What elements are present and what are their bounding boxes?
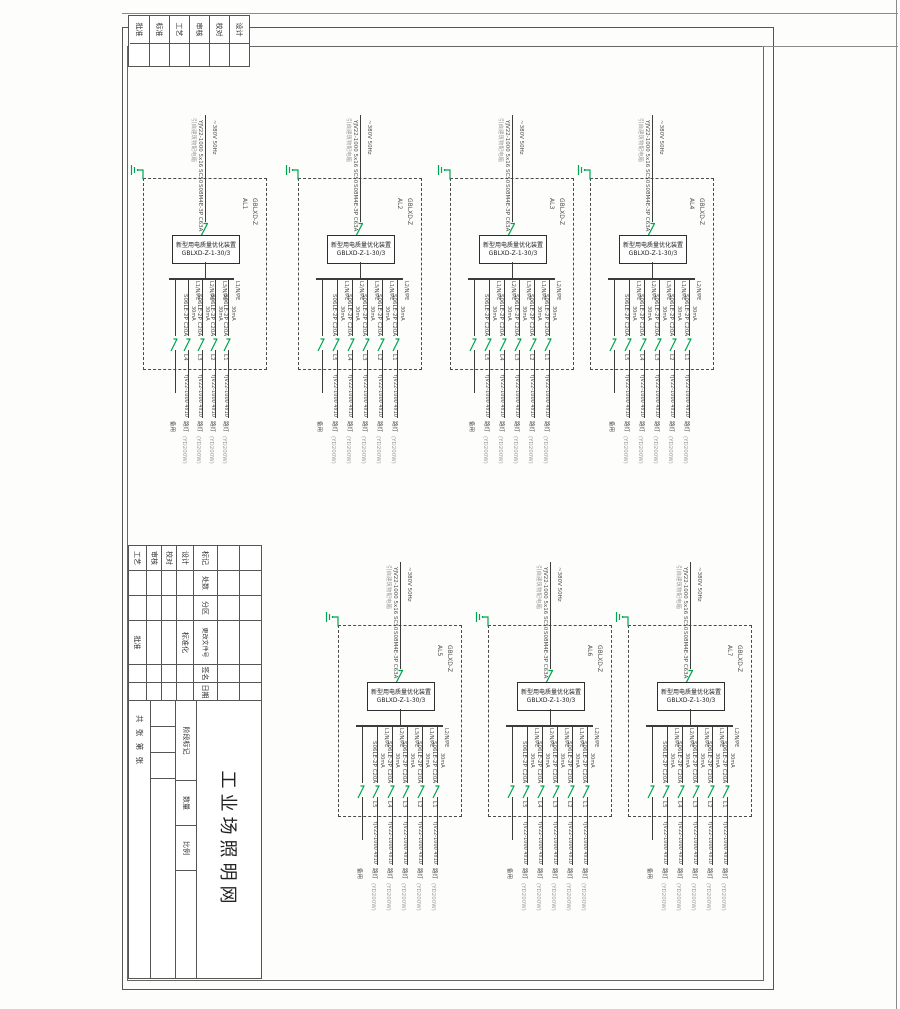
branch-wire-upper [474, 279, 475, 336]
branch-wire-upper [712, 726, 713, 783]
branch-cable-label: YJV22-1000 4x10 [392, 374, 397, 417]
branch-cable-label: YJV22-1000 4x10 [210, 374, 215, 417]
branch-rcd-label: 30mA [339, 306, 344, 321]
branch-phase-label: L2/N/PE [593, 728, 598, 747]
titleblock-cell [240, 683, 261, 700]
titleblock-cell [176, 871, 196, 978]
device-model: GBLXD-Z-1-30/3 [658, 697, 724, 705]
panel-name-label: AL6 [586, 645, 592, 656]
branch-wire-upper [527, 726, 528, 783]
branch-cable-label: YJV22-1000 4x10 [417, 821, 422, 864]
titleblock-row [239, 546, 261, 700]
branch-wire-upper [202, 279, 203, 336]
branch-rcd-label: 30mA [551, 306, 556, 321]
device-name: 新型用电质量优化装置 [620, 242, 686, 250]
load-power-label: (YD200W) [580, 883, 586, 911]
load-name-label: 路灯 [653, 421, 659, 432]
branch-breaker-label: S06LE-2P C20A [376, 294, 382, 336]
ground-icon [437, 163, 451, 184]
branch-breaker-icon [566, 783, 576, 803]
branch-wire-upper [667, 726, 668, 783]
incoming-source-label: 引自建筑物配电箱 [535, 565, 541, 609]
titleblock-cell [218, 546, 239, 571]
branch-cable-label: YJV22-1000 4x10 [624, 374, 629, 417]
load-name-label: 路灯 [371, 868, 377, 879]
qty-label: 数量 [176, 781, 196, 826]
branch-cable-label: YJV22-1000 4x10 [377, 374, 382, 417]
panel-model-label: GBLXD-Z [596, 645, 602, 672]
branch-rcd-label: 30mA [424, 753, 429, 768]
branch-cable-label: YJV22-1000 4x10 [567, 821, 572, 864]
branch-wire-lower [474, 350, 475, 393]
panel-model-label: GBLXD-Z [698, 198, 704, 225]
incoming-cable-label: YJV22-1000 5x16 SC50 [504, 120, 510, 183]
load-power-label: (YD200W) [675, 883, 681, 911]
titleblock-cell [129, 596, 146, 621]
titleblock-row [217, 546, 239, 700]
titleblock-row: 阶段标记 数量 比例 [175, 701, 196, 978]
incoming-feeder-wire [205, 115, 206, 222]
load-power-label: (YD200W) [195, 436, 201, 464]
incoming-feeder-wire [690, 562, 691, 669]
circuit-id-label: L1 [391, 354, 397, 361]
panel-model-label: GBLXD-Z [406, 198, 412, 225]
branch-breaker-label: S06LE-2P C20A [371, 741, 377, 783]
drawing-title: 工业场照明网 [196, 701, 261, 978]
load-name-label: 路灯 [581, 868, 587, 879]
load-power-label: (YD200W) [400, 883, 406, 911]
ground-icon [130, 163, 144, 184]
circuit-id-label: L1 [431, 801, 437, 808]
device-name: 新型用电质量优化装置 [518, 689, 584, 697]
load-power-label: (YD200W) [565, 883, 571, 911]
load-power-label: (YD200W) [512, 436, 518, 464]
branch-breaker-label: S06LE-2P C20A [536, 741, 542, 783]
branch-breaker-label: S06LE-2P C20A [566, 741, 572, 783]
device-outgoing-stem [205, 262, 206, 279]
strip-row: 校对 [209, 16, 229, 66]
branch-wire-upper [392, 726, 393, 783]
circuit-id-label: L1 [683, 354, 689, 361]
titleblock-cell [129, 665, 146, 683]
load-name-label: 路灯 [623, 421, 629, 432]
branch-rcd-label: 30mA [521, 306, 526, 321]
strip-label: 审核 [190, 16, 209, 44]
panel-name-label: AL2 [396, 198, 402, 209]
incoming-source-label: 引自建筑物配电箱 [385, 565, 391, 609]
circuit-id-label: L3 [513, 354, 519, 361]
load-power-label: (YD200W) [720, 883, 726, 911]
branch-phase-label: L2/N/PE [403, 281, 408, 300]
incoming-cable-label: YJV22-1000 5x16 SC50 [542, 567, 548, 630]
load-power-label: (YD200W) [375, 436, 381, 464]
branch-rcd-label: 30mA [544, 753, 549, 768]
load-power-label: (YD200W) [667, 436, 673, 464]
load-name-label: 路灯 [391, 421, 397, 432]
branch-breaker-icon [431, 783, 441, 803]
branch-rcd-label: 30mA [190, 306, 195, 321]
rev-header: 更改文件号 [194, 621, 217, 665]
circuit-id-label: L4 [498, 354, 504, 361]
branch-breaker-label: S06LE-2P C20A [431, 741, 437, 783]
circuit-id-label: L2 [706, 801, 712, 808]
incoming-source-label: 引自建筑物配电箱 [637, 118, 643, 162]
incoming-source-label: 引自建筑物配电箱 [345, 118, 351, 162]
load-power-label: (YD200W) [370, 883, 376, 911]
strip-blank-cell [150, 44, 169, 66]
load-power-label: (YD200W) [637, 436, 643, 464]
branch-cable-label: YJV22-1000 4x10 [432, 821, 437, 864]
load-name-label: 路灯 [513, 421, 519, 432]
device-outgoing-stem [690, 709, 691, 726]
device-outgoing-stem [550, 709, 551, 726]
load-power-label: (YD200W) [497, 436, 503, 464]
circuit-id-label: L1 [543, 354, 549, 361]
branch-wire-upper [644, 279, 645, 336]
load-name-label: 路灯 [209, 421, 215, 432]
branch-wire-upper [614, 279, 615, 336]
panel-name-label: AL7 [726, 645, 732, 656]
sig-label: 校对 [162, 546, 176, 571]
titleblock-cell [177, 571, 193, 596]
branch-wire-upper [422, 726, 423, 783]
circuit-id-label: L2 [376, 354, 382, 361]
branch-wire-upper [362, 726, 363, 783]
branch-breaker-label: S06LE-2P C20A [543, 294, 549, 336]
branch-breaker-icon [169, 336, 179, 356]
titleblock-row: 校对 [161, 546, 176, 700]
branch-breaker-label: S06LE-2P C20A [209, 294, 215, 336]
circuit-id-label: L3 [551, 801, 557, 808]
scan-artifact-line [762, 46, 898, 47]
load-name-label: 路灯 [668, 421, 674, 432]
strip-row: 批准 [130, 16, 149, 66]
branch-phase-label: L1/N/PE [234, 281, 239, 300]
load-power-label: (YD200W) [535, 883, 541, 911]
branch-breaker-icon [528, 336, 538, 356]
panel-model-label: GBLXD-Z [251, 198, 257, 225]
load-power-label: (YD200W) [330, 436, 336, 464]
branch-wire-upper [377, 726, 378, 783]
panel-model-label: GBLXD-Z [446, 645, 452, 672]
branch-breaker-icon [376, 336, 386, 356]
branch-breaker-icon [581, 783, 591, 803]
bus-bar [316, 278, 403, 280]
branch-wire-upper [652, 726, 653, 783]
strip-blank-cell [230, 44, 249, 66]
titleblock-cell [177, 596, 193, 621]
load-name-label: 路灯 [401, 868, 407, 879]
device-name: 新型用电质量优化装置 [173, 242, 239, 250]
load-name-label: 路灯 [528, 421, 534, 432]
branch-breaker-icon [371, 783, 381, 803]
device-outgoing-stem [400, 709, 401, 726]
branch-wire-upper [727, 726, 728, 783]
circuit-id-label: L2 [528, 354, 534, 361]
panel-name-label: AL3 [548, 198, 554, 209]
load-power-label: (YD200W) [542, 436, 548, 464]
spare-label: 备用 [506, 868, 512, 879]
branch-wire-upper [512, 726, 513, 783]
panel-name-label: AL4 [688, 198, 694, 209]
branch-breaker-label: S06LE-2P C20A [521, 741, 527, 783]
branch-rcd-label: 30mA [230, 306, 235, 321]
sheet-count: 共 张 第 张 [129, 701, 150, 978]
sig-label: 设计 [177, 546, 193, 571]
branch-rcd-label: 30mA [369, 306, 374, 321]
spare-label: 备用 [356, 868, 362, 879]
branch-phase-label: L2/N/PE [733, 728, 738, 747]
ground-icon [285, 163, 299, 184]
branch-rcd-label: 30mA [661, 306, 666, 321]
load-name-label: 路灯 [331, 421, 337, 432]
branch-wire-upper [629, 279, 630, 336]
strip-label: 批准 [130, 16, 149, 44]
device-model: GBLXD-Z-1-30/3 [328, 250, 394, 258]
branch-breaker-icon [391, 336, 401, 356]
titleblock-cell [218, 665, 239, 683]
device-model: GBLXD-Z-1-30/3 [173, 250, 239, 258]
titleblock-cell [240, 546, 261, 571]
load-name-label: 路灯 [498, 421, 504, 432]
load-power-label: (YD200W) [385, 883, 391, 911]
load-power-label: (YD200W) [345, 436, 351, 464]
panel-name-label: AL5 [436, 645, 442, 656]
device-name: 新型用电质量优化装置 [328, 242, 394, 250]
incoming-voltage-label: ~380V 50Hz [696, 567, 702, 602]
panel-model-label: GBLXD-Z [558, 198, 564, 225]
branch-breaker-label: S06LE-2P C20A [551, 741, 557, 783]
load-power-label: (YD200W) [482, 436, 488, 464]
circuit-id-label: L5 [521, 801, 527, 808]
branch-wire-upper [397, 279, 398, 336]
std-label: 标准化 [177, 621, 193, 665]
titleblock-header-row: 标记 处数 分区 更改文件号 签名 日期 [193, 546, 217, 700]
branch-wire-upper [674, 279, 675, 336]
branch-wire-upper [572, 726, 573, 783]
branch-wire-lower [362, 797, 363, 840]
load-power-label: (YD200W) [221, 436, 227, 464]
stage-box [151, 701, 175, 727]
titleblock-cell [240, 621, 261, 665]
incoming-voltage-label: ~380V 50Hz [556, 567, 562, 602]
incoming-feeder-wire [400, 562, 401, 669]
branch-breaker-icon [361, 336, 371, 356]
branch-wire-upper [689, 279, 690, 336]
branch-breaker-icon [653, 336, 663, 356]
titleblock-cell [177, 665, 193, 683]
branch-cable-label: YJV22-1000 4x10 [684, 374, 689, 417]
incoming-cable-label: YJV22-1000 5x16 SC50 [352, 120, 358, 183]
titleblock-cell [147, 683, 161, 700]
titleblock-row: 审核 [146, 546, 161, 700]
branch-rcd-label: 30mA [536, 306, 541, 321]
branch-wire-upper [322, 279, 323, 336]
circuit-id-label: L1 [222, 354, 228, 361]
rev-header: 日期 [194, 683, 217, 700]
load-name-label: 路灯 [536, 868, 542, 879]
branch-breaker-label: S06LE-2P C20A [401, 741, 407, 783]
incoming-source-label: 引自建筑物配电箱 [497, 118, 503, 162]
branch-rcd-label: 30mA [491, 306, 496, 321]
branch-breaker-icon [513, 336, 523, 356]
incoming-feeder-wire [512, 115, 513, 222]
rev-header: 标记 [194, 546, 217, 571]
load-name-label: 路灯 [521, 868, 527, 879]
titleblock-cell [218, 621, 239, 665]
incoming-voltage-label: ~380V 50Hz [406, 567, 412, 602]
branch-breaker-label: S06LE-2P C20A [683, 294, 689, 336]
strip-label: 校对 [210, 16, 229, 44]
branch-rcd-label: 30mA [506, 306, 511, 321]
branch-breaker-label: S06LE-2P C20A [196, 294, 202, 336]
ground-icon [325, 610, 339, 631]
branch-breaker-label: S06LE-2P C20A [182, 294, 188, 336]
circuit-id-label: L4 [182, 354, 188, 361]
device-name: 新型用电质量优化装置 [368, 689, 434, 697]
branch-cable-label: YJV22-1000 4x10 [484, 374, 489, 417]
corner-signature-strip: 设计 校对 审核 工艺 标准 批准 [128, 15, 250, 67]
titleblock-cell [177, 683, 193, 700]
branch-cable-label: YJV22-1000 4x10 [582, 821, 587, 864]
branch-breaker-icon [401, 783, 411, 803]
strip-row: 工艺 [169, 16, 189, 66]
branch-wire-upper [382, 279, 383, 336]
branch-breaker-label: S06LE-2P C20A [416, 741, 422, 783]
titleblock-row: 设计 标准化 [176, 546, 193, 700]
load-name-label: 路灯 [706, 868, 712, 879]
incoming-source-label: 引自建筑物配电箱 [675, 565, 681, 609]
branch-phase-label: L2/N/PE [443, 728, 448, 747]
branch-cable-label: YJV22-1000 4x10 [347, 374, 352, 417]
strip-blank-cell [190, 44, 209, 66]
incoming-cable-label: YJV22-1000 5x16 SC50 [682, 567, 688, 630]
branch-rcd-label: 30mA [439, 753, 444, 768]
rev-header: 处数 [194, 571, 217, 596]
load-power-label: (YD200W) [705, 883, 711, 911]
branch-cable-label: YJV22-1000 4x10 [692, 821, 697, 864]
device-name: 新型用电质量优化装置 [480, 242, 546, 250]
approve-label: 批准 [129, 621, 146, 665]
branch-phase-label: L2/N/PE [695, 281, 700, 300]
branch-rcd-label: 30mA [691, 306, 696, 321]
branch-wire-upper [519, 279, 520, 336]
branch-cable-label: YJV22-1000 4x10 [707, 821, 712, 864]
branch-cable-label: YJV22-1000 4x10 [662, 821, 667, 864]
ground-icon [475, 610, 489, 631]
titleblock-cell [129, 571, 146, 596]
circuit-id-label: L4 [386, 801, 392, 808]
circuit-id-label: L4 [346, 354, 352, 361]
branch-breaker-icon [386, 783, 396, 803]
titleblock-cell [147, 571, 161, 596]
load-power-label: (YD200W) [181, 436, 187, 464]
branch-breaker-icon [346, 336, 356, 356]
ground-icon [615, 610, 629, 631]
quality-device-box: 新型用电质量优化装置GBLXD-Z-1-30/3 [479, 235, 547, 264]
device-outgoing-stem [360, 262, 361, 279]
titleblock-cell [162, 665, 176, 683]
incoming-source-label: 引自建筑物配电箱 [190, 118, 196, 162]
branch-breaker-icon [316, 336, 326, 356]
titleblock-cell [162, 683, 176, 700]
circuit-id-label: L2 [416, 801, 422, 808]
branch-breaker-icon [468, 336, 478, 356]
panel-name-label: AL1 [241, 198, 247, 209]
stage-mark-label: 阶段标记 [176, 701, 196, 781]
load-name-label: 路灯 [196, 421, 202, 432]
spare-label: 备用 [468, 421, 474, 432]
branch-rcd-label: 30mA [631, 306, 636, 321]
title-block-revision-area: 标记 处数 分区 更改文件号 签名 日期 设计 标准化 校对 审核 工艺 批准 [129, 546, 261, 701]
incoming-voltage-label: ~380V 50Hz [658, 120, 664, 155]
titleblock-cell [162, 571, 176, 596]
branch-breaker-label: S06LE-2P C20A [361, 294, 367, 336]
branch-rcd-label: 30mA [354, 306, 359, 321]
branch-cable-label: YJV22-1000 4x10 [387, 821, 392, 864]
load-name-label: 路灯 [691, 868, 697, 879]
strip-blank-cell [170, 44, 189, 66]
branch-cable-label: YJV22-1000 4x10 [197, 374, 202, 417]
circuit-id-label: L3 [691, 801, 697, 808]
branch-breaker-label: S06LE-2P C20A [721, 741, 727, 783]
circuit-id-label: L3 [653, 354, 659, 361]
branch-cable-label: YJV22-1000 4x10 [332, 374, 337, 417]
load-power-label: (YD200W) [430, 883, 436, 911]
incoming-voltage-label: ~380V 50Hz [366, 120, 372, 155]
branch-breaker-label: S06LE-2P C20A [706, 741, 712, 783]
titleblock-cell [162, 621, 176, 665]
branch-wire-upper [542, 726, 543, 783]
branch-rcd-label: 30mA [684, 753, 689, 768]
branch-cable-label: YJV22-1000 4x10 [223, 374, 228, 417]
branch-wire-lower [652, 797, 653, 840]
load-power-label: (YD200W) [652, 436, 658, 464]
branch-rcd-label: 30mA [676, 306, 681, 321]
device-model: GBLXD-Z-1-30/3 [620, 250, 686, 258]
branch-breaker-label: S06LE-2P C20A [391, 294, 397, 336]
load-name-label: 路灯 [416, 868, 422, 879]
circuit-id-label: L1 [721, 801, 727, 808]
titleblock-cell [147, 665, 161, 683]
load-power-label: (YD200W) [527, 436, 533, 464]
branch-wire-lower [614, 350, 615, 393]
branch-breaker-label: S06LE-2P C20A [623, 294, 629, 336]
incoming-cable-label: YJV22-1000 5x16 SC50 [392, 567, 398, 630]
branch-rcd-label: 30mA [589, 753, 594, 768]
sig-label: 工艺 [129, 546, 146, 571]
branch-breaker-icon [668, 336, 678, 356]
branch-cable-label: YJV22-1000 4x10 [677, 821, 682, 864]
load-name-label: 路灯 [676, 868, 682, 879]
branch-wire-upper [175, 279, 176, 336]
load-name-label: 路灯 [543, 421, 549, 432]
branch-cable-label: YJV22-1000 4x10 [522, 821, 527, 864]
branch-rcd-label: 30mA [529, 753, 534, 768]
quality-device-box: 新型用电质量优化装置GBLXD-Z-1-30/3 [367, 682, 435, 711]
branch-wire-upper [437, 726, 438, 783]
branch-rcd-label: 30mA [574, 753, 579, 768]
strip-row: 审核 [189, 16, 209, 66]
branch-breaker-label: S06LE-2P C20A [668, 294, 674, 336]
rev-header: 签名 [194, 665, 217, 683]
branch-breaker-icon [506, 783, 516, 803]
branch-wire-lower [322, 350, 323, 393]
circuit-id-label: L3 [401, 801, 407, 808]
branch-breaker-label: S06LE-2P C20A [513, 294, 519, 336]
load-power-label: (YD200W) [520, 883, 526, 911]
branch-wire-lower [175, 350, 176, 393]
